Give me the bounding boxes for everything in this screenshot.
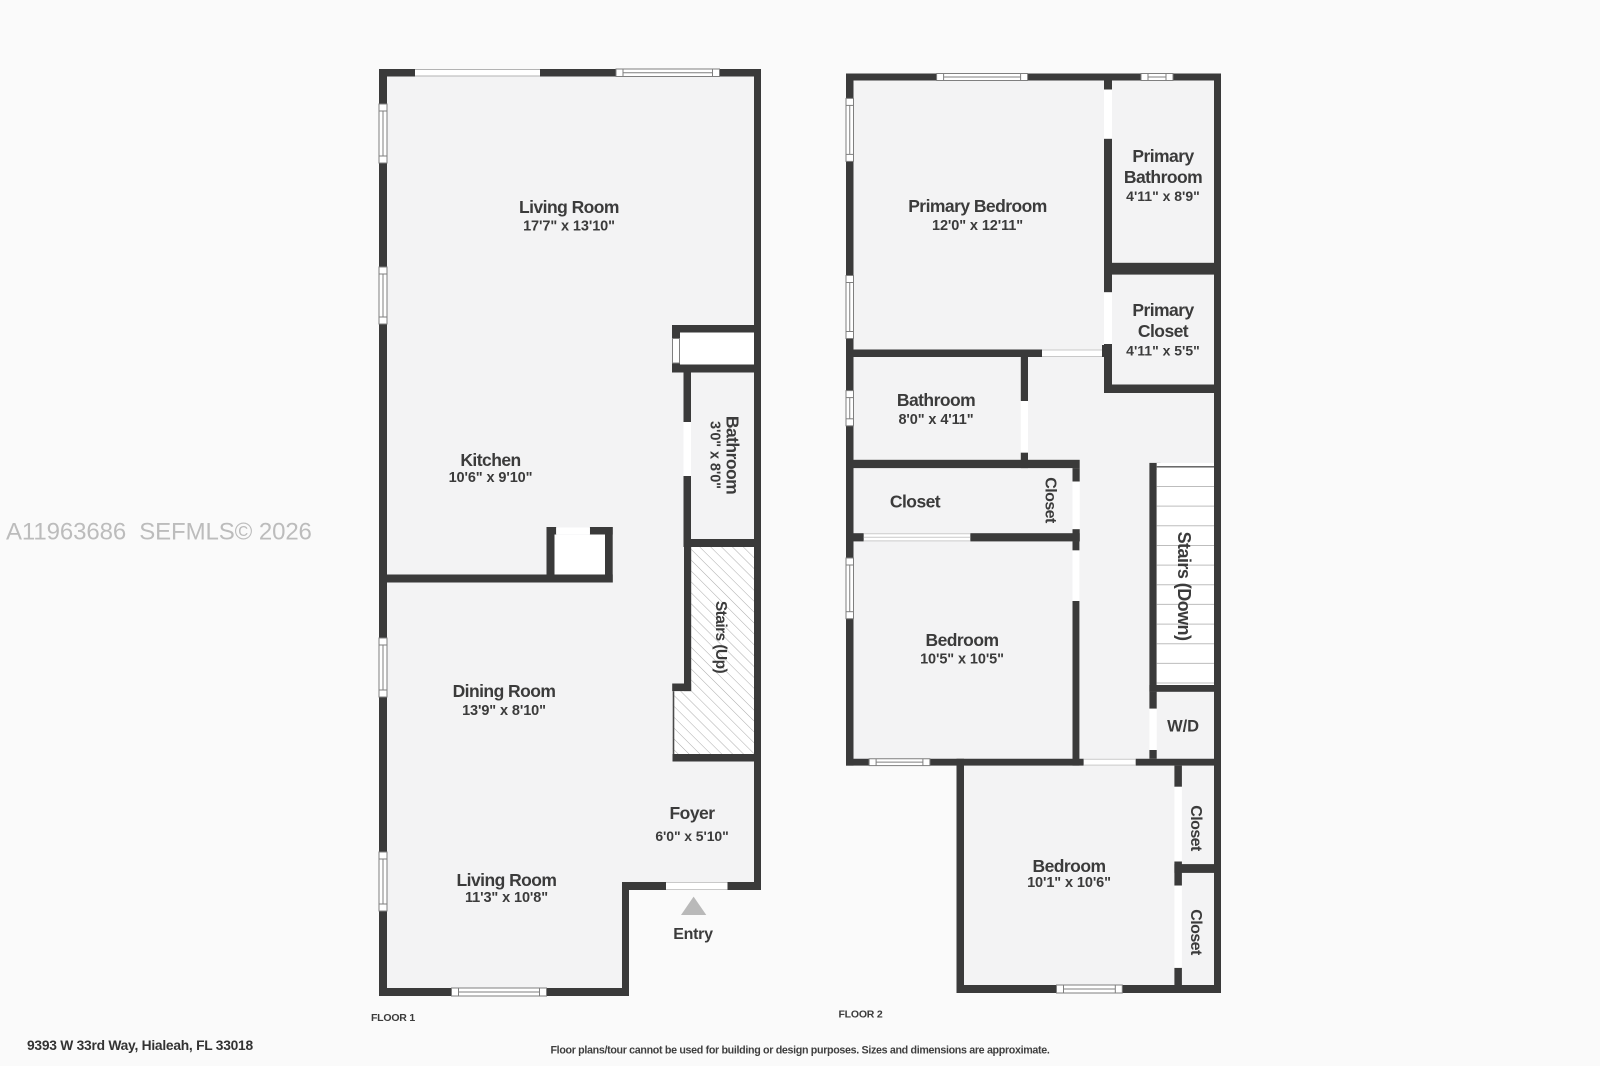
svg-text:Kitchen: Kitchen (460, 450, 520, 470)
svg-text:Closet: Closet (890, 492, 941, 512)
svg-text:Dining Room: Dining Room (453, 681, 556, 701)
svg-text:10'1" x 10'6": 10'1" x 10'6" (1027, 875, 1111, 891)
svg-text:FLOOR 2: FLOOR 2 (838, 1009, 882, 1021)
svg-text:Stairs (Down): Stairs (Down) (1174, 532, 1194, 641)
svg-text:8'0" x 4'11": 8'0" x 4'11" (898, 412, 973, 428)
svg-text:6'0" x 5'10": 6'0" x 5'10" (655, 828, 728, 844)
svg-text:4'11" x 8'9": 4'11" x 8'9" (1126, 188, 1200, 204)
svg-text:Bedroom: Bedroom (926, 630, 999, 650)
svg-text:Primary Bedroom: Primary Bedroom (908, 196, 1047, 216)
svg-text:Bedroom: Bedroom (1033, 856, 1106, 876)
svg-text:12'0" x 12'11": 12'0" x 12'11" (932, 218, 1023, 234)
svg-text:Closet: Closet (1138, 321, 1189, 341)
svg-text:Bathroom: Bathroom (1124, 167, 1202, 187)
svg-text:Floor plans/tour cannot be use: Floor plans/tour cannot be used for buil… (550, 1045, 1049, 1057)
svg-text:11'3" x 10'8": 11'3" x 10'8" (465, 890, 548, 906)
svg-text:Primary: Primary (1132, 300, 1194, 320)
svg-text:9393 W 33rd Way, Hialeah, FL 3: 9393 W 33rd Way, Hialeah, FL 33018 (27, 1038, 253, 1053)
svg-text:17'7" x 13'10": 17'7" x 13'10" (523, 219, 615, 235)
svg-text:Foyer: Foyer (670, 803, 716, 823)
svg-text:Primary: Primary (1132, 146, 1194, 166)
svg-text:Stairs (Up): Stairs (Up) (712, 601, 729, 674)
svg-text:Closet: Closet (1042, 477, 1059, 524)
svg-text:13'9" x 8'10": 13'9" x 8'10" (462, 703, 546, 719)
svg-text:3'0" x 8'0": 3'0" x 8'0" (707, 421, 723, 489)
svg-text:10'5" x 10'5": 10'5" x 10'5" (920, 652, 1004, 668)
svg-text:W/D: W/D (1167, 718, 1199, 736)
svg-text:FLOOR 1: FLOOR 1 (371, 1012, 415, 1024)
svg-text:Entry: Entry (673, 926, 713, 943)
svg-text:Bathroom: Bathroom (723, 416, 743, 494)
svg-text:Bathroom: Bathroom (897, 390, 975, 410)
svg-text:Closet: Closet (1187, 909, 1204, 956)
svg-text:4'11" x 5'5": 4'11" x 5'5" (1126, 343, 1200, 359)
svg-text:A11963686 SEFMLS© 2026: A11963686 SEFMLS© 2026 (6, 519, 312, 546)
svg-text:Closet: Closet (1187, 805, 1204, 852)
svg-text:Living Room: Living Room (519, 197, 619, 217)
svg-text:10'6" x 9'10": 10'6" x 9'10" (449, 470, 533, 486)
svg-text:Living Room: Living Room (457, 870, 557, 890)
